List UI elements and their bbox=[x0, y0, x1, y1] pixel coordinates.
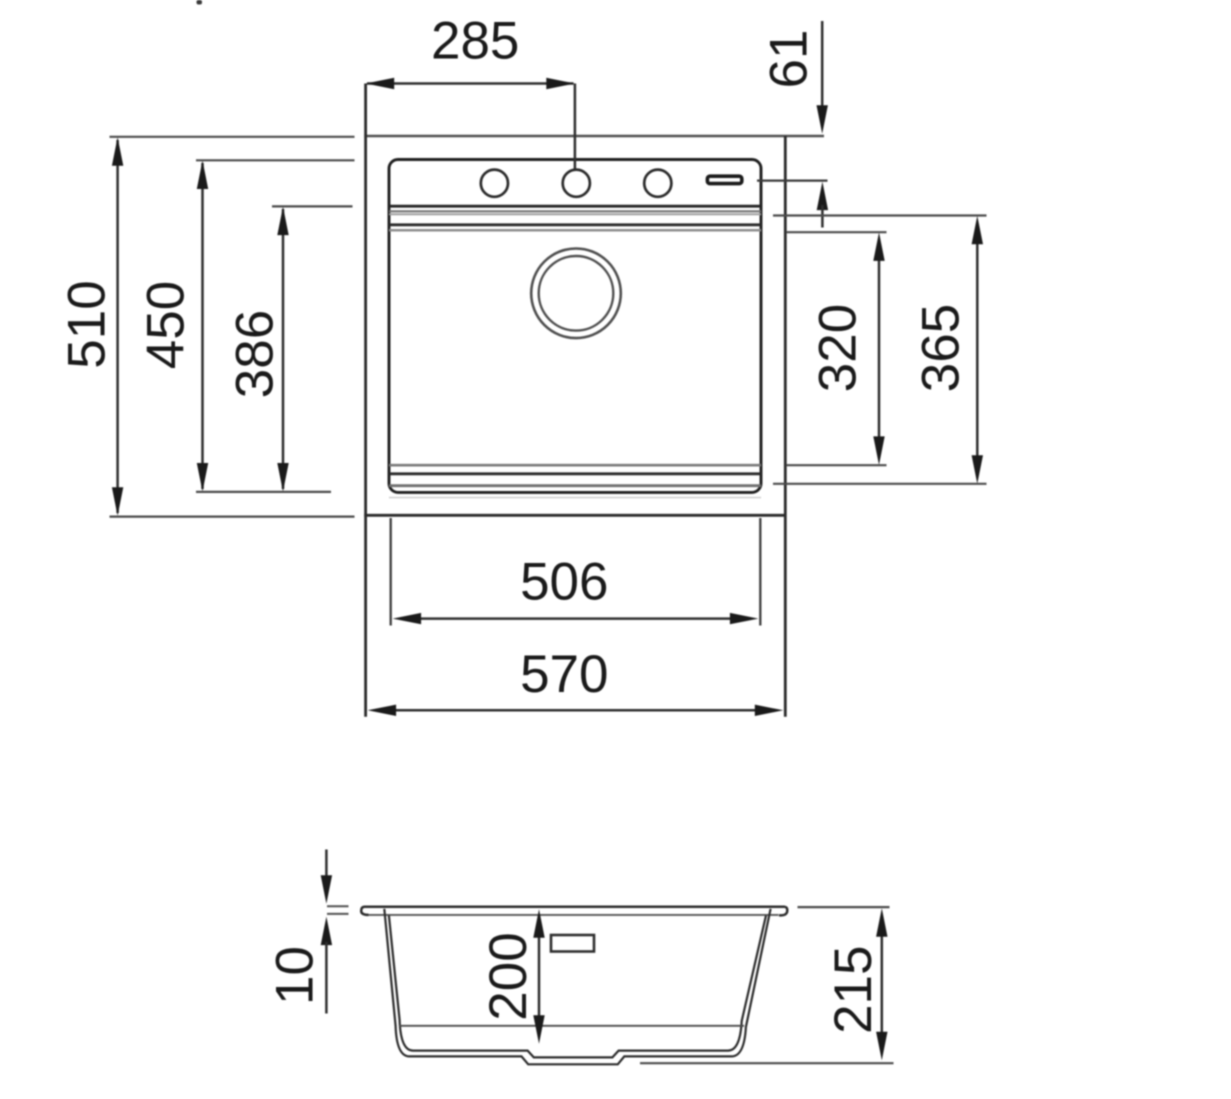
svg-text:10: 10 bbox=[266, 946, 325, 1005]
svg-text:510: 510 bbox=[58, 280, 117, 368]
svg-text:386: 386 bbox=[226, 310, 285, 398]
svg-text:285: 285 bbox=[431, 12, 519, 71]
svg-text:320: 320 bbox=[809, 304, 868, 392]
svg-text:570: 570 bbox=[520, 645, 608, 704]
svg-text:365: 365 bbox=[912, 304, 971, 392]
svg-text:506: 506 bbox=[520, 552, 608, 611]
svg-text:215: 215 bbox=[824, 945, 883, 1033]
svg-text:61: 61 bbox=[760, 30, 819, 89]
svg-text:200: 200 bbox=[479, 932, 538, 1020]
svg-text:450: 450 bbox=[137, 281, 196, 369]
